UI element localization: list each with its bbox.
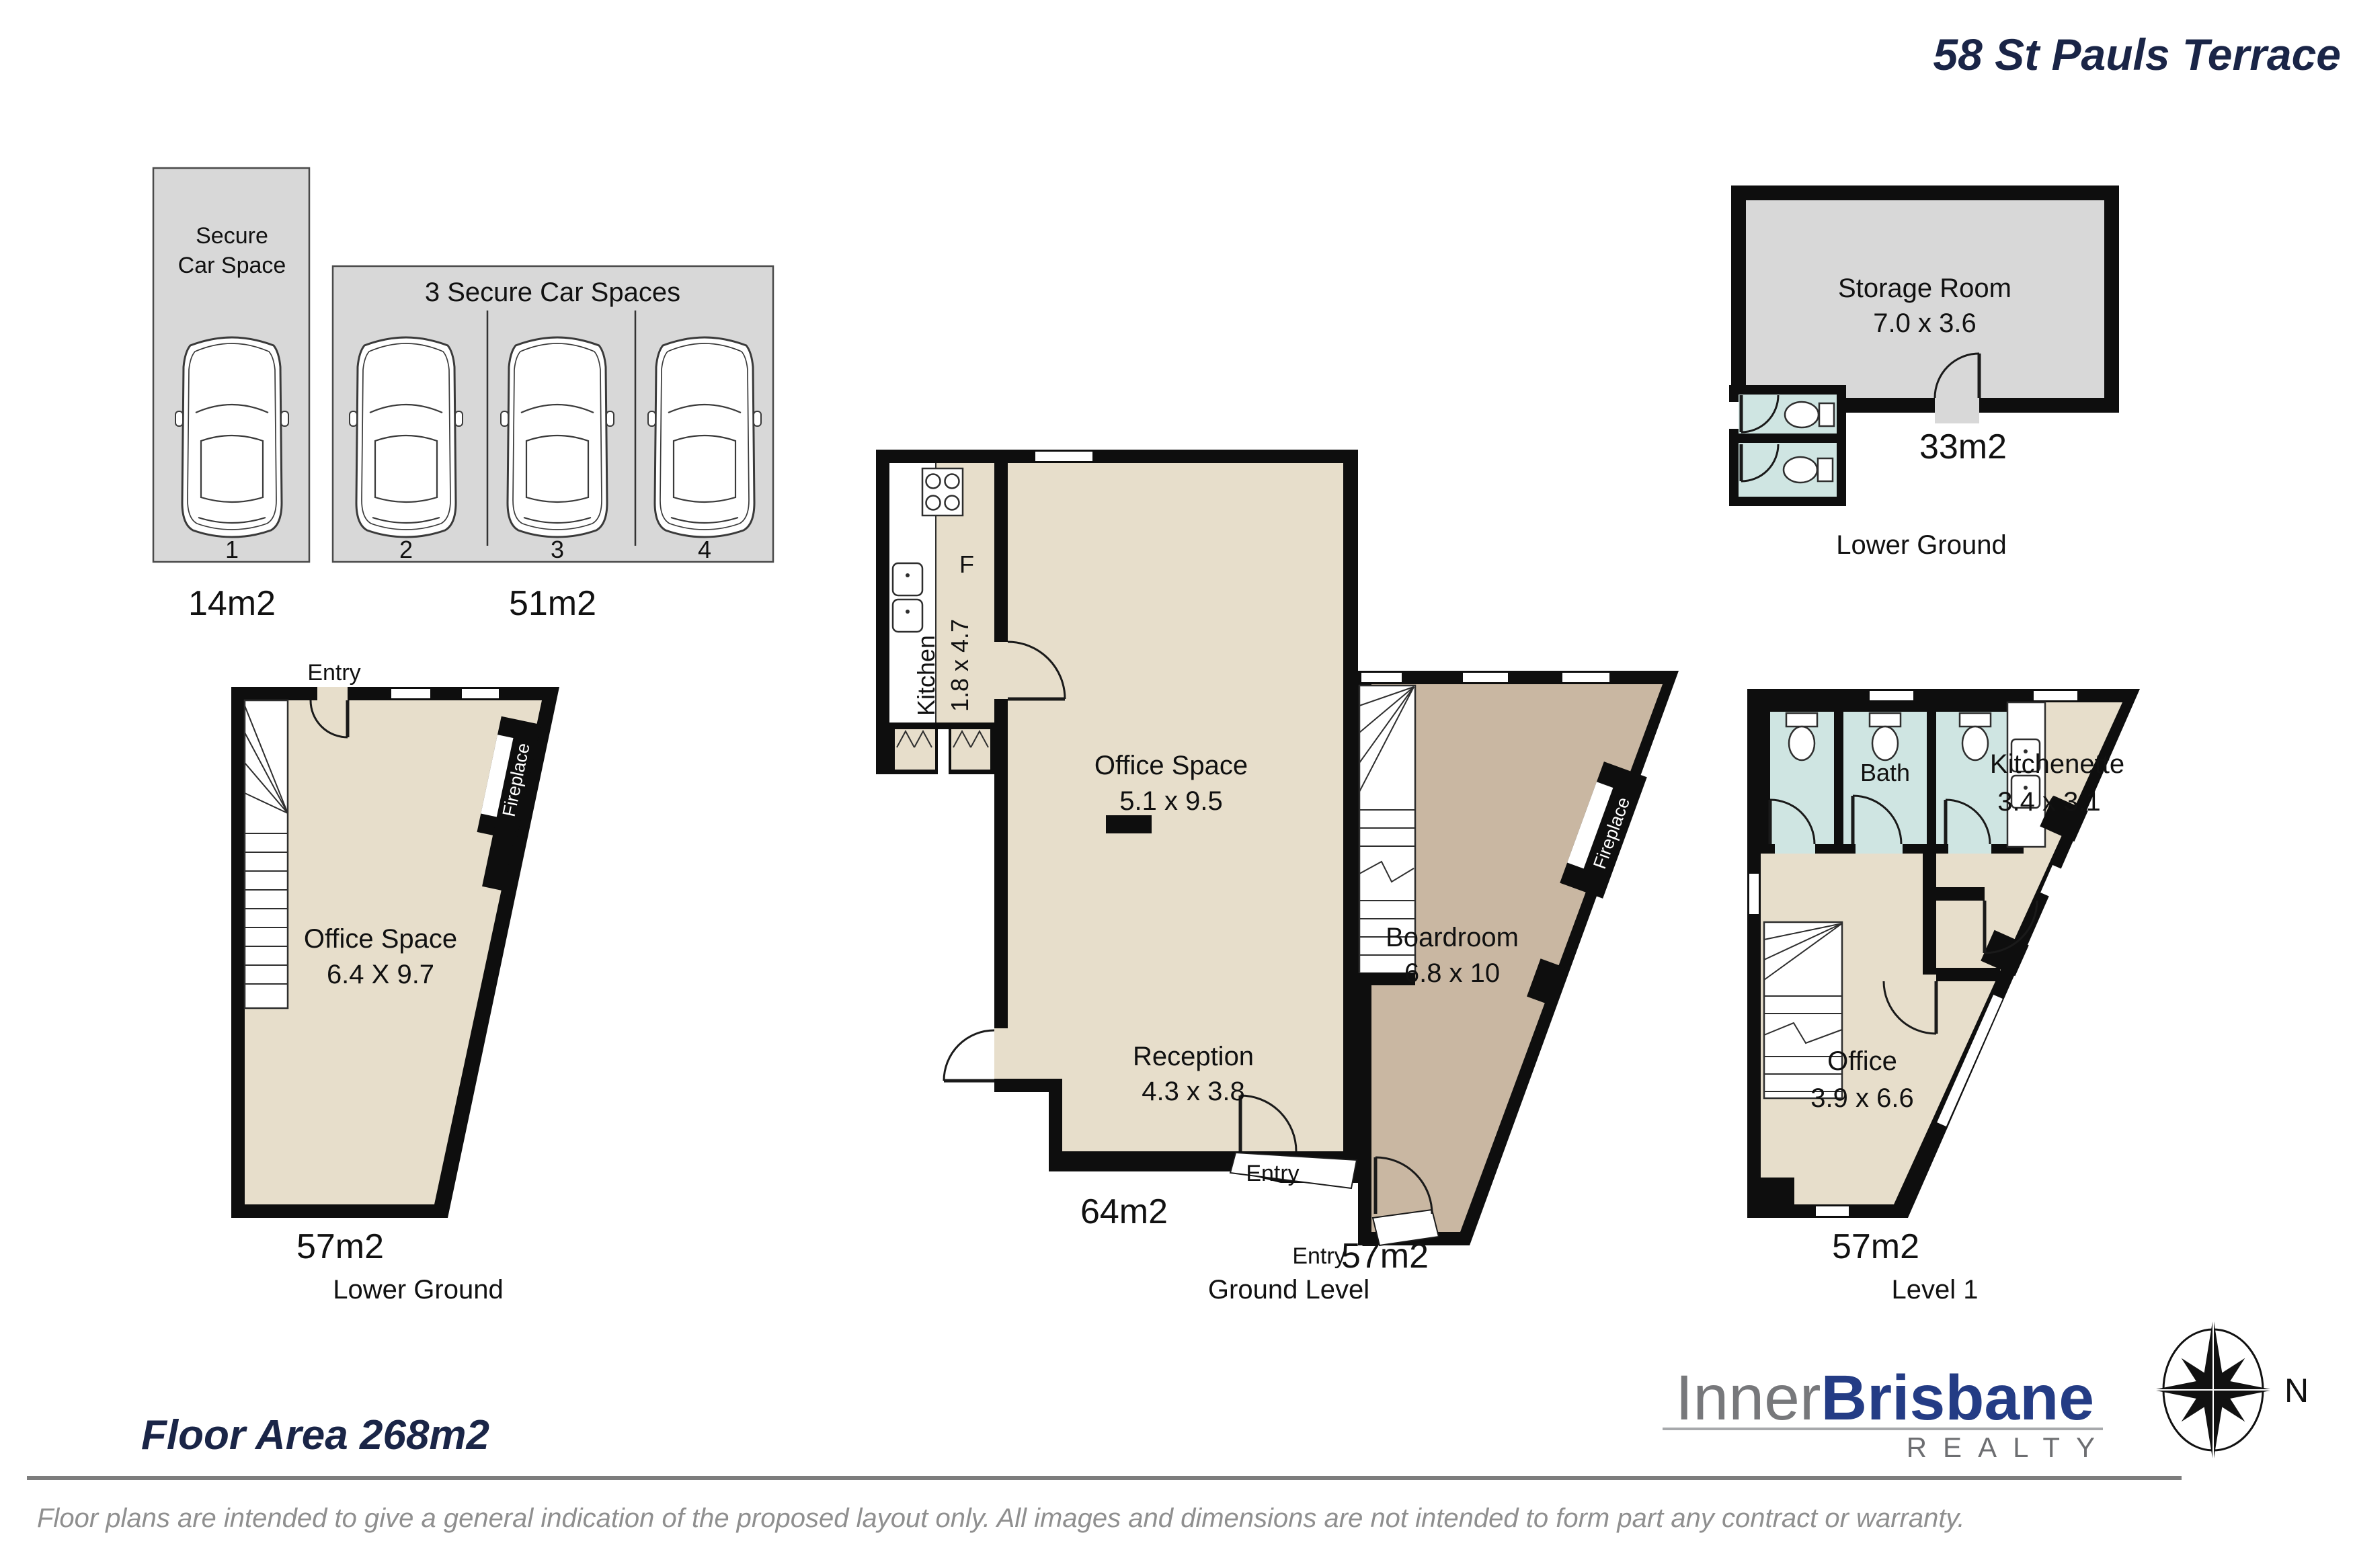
logo-part-inner: Inner xyxy=(1675,1362,1821,1434)
floor-area-total: Floor Area 268m2 xyxy=(141,1412,489,1458)
lower-ground-level: Lower Ground xyxy=(333,1275,503,1305)
lower-ground-plan: Entry Fireplace Office Space xyxy=(231,660,559,1305)
ground-area-right: 57m2 xyxy=(1341,1237,1429,1276)
compass-icon xyxy=(2149,1317,2277,1462)
single-space-title-line2: Car Space xyxy=(178,253,286,278)
space-number-4: 4 xyxy=(698,536,711,563)
car-icon xyxy=(350,337,463,537)
boardroom-label: Boardroom xyxy=(1386,923,1519,952)
compass-north-label: N xyxy=(2284,1372,2309,1409)
storage-plan: Storage Room 7.0 x 3.6 33m2 Lower Ground xyxy=(1729,185,2119,560)
car-icon xyxy=(648,337,761,537)
footer-divider xyxy=(27,1476,2182,1480)
toilet-icon xyxy=(1784,457,1833,483)
disclaimer-text: Floor plans are intended to give a gener… xyxy=(37,1503,1965,1533)
lower-ground-room-dims: 6.4 X 9.7 xyxy=(327,960,434,989)
boardroom-dims: 6.8 x 10 xyxy=(1404,958,1500,988)
level1-office-label: Office xyxy=(1827,1046,1897,1076)
level1-level-label: Level 1 xyxy=(1892,1275,1979,1305)
lower-ground-room-label: Office Space xyxy=(304,924,457,954)
floorplan-canvas: 58 St Pauls Terrace Secure Car Space 3 S… xyxy=(0,0,2353,1568)
toilet-icon xyxy=(1785,402,1834,427)
logo-part-brisbane: Brisbane xyxy=(1821,1362,2095,1434)
level1-plan: Bath Kitchenette 3.4 x 3.1 Office 3.9 x … xyxy=(1747,689,2140,1305)
kitchenette-dims: 3.4 x 3.1 xyxy=(1997,787,2100,817)
toilet-icon xyxy=(1960,713,1991,760)
single-space-area: 14m2 xyxy=(188,584,276,623)
level1-area: 57m2 xyxy=(1832,1227,1919,1266)
logo-part-realty: REALTY xyxy=(1907,1432,2111,1463)
storage-area: 33m2 xyxy=(1919,427,2007,466)
triple-space-title: 3 Secure Car Spaces xyxy=(425,278,680,307)
toilet-icon xyxy=(1870,713,1901,760)
floorplan-page: 58 St Pauls Terrace Secure Car Space 3 S… xyxy=(0,0,2353,1568)
lower-ground-entry-label: Entry xyxy=(307,660,360,686)
car-icon xyxy=(501,337,614,537)
fridge-label: F xyxy=(959,550,974,578)
storage-room-dims: 7.0 x 3.6 xyxy=(1873,308,1976,338)
ground-plan: Fireplace Kitchen 1.8 x 4.7 F Office Spa… xyxy=(876,450,1679,1305)
storage-level: Lower Ground xyxy=(1836,530,2006,560)
reception-label: Reception xyxy=(1133,1042,1254,1071)
storage-room-label: Storage Room xyxy=(1838,274,2011,303)
kitchen-label: Kitchen xyxy=(912,635,940,716)
lower-ground-area: 57m2 xyxy=(296,1227,384,1266)
ground-office-dims: 5.1 x 9.5 xyxy=(1119,786,1222,816)
level1-office-dims: 3.9 x 6.6 xyxy=(1810,1083,1913,1113)
space-number-2: 2 xyxy=(399,536,413,563)
car-icon xyxy=(175,337,288,537)
ground-entry-right-label: Entry xyxy=(1292,1243,1345,1269)
toilet-icon xyxy=(1786,713,1817,760)
parking-plan: Secure Car Space 3 Secure Car Spaces 1 2… xyxy=(153,168,773,623)
space-number-3: 3 xyxy=(551,536,564,563)
logo-wordmark: InnerBrisbane xyxy=(1675,1362,2094,1434)
stairs-icon xyxy=(245,700,288,1008)
reception-dims: 4.3 x 3.8 xyxy=(1142,1077,1244,1106)
door-arc-icon xyxy=(944,1030,994,1081)
ground-office-label: Office Space xyxy=(1094,751,1248,780)
ground-entry-left-label: Entry xyxy=(1246,1161,1299,1186)
single-space-title-line1: Secure xyxy=(196,223,268,249)
ground-area-left: 64m2 xyxy=(1080,1192,1168,1231)
bath-label: Bath xyxy=(1860,759,1910,786)
brand-logo: InnerBrisbane REALTY xyxy=(1663,1362,2111,1463)
page-title: 58 St Pauls Terrace xyxy=(1933,30,2341,79)
triple-space-area: 51m2 xyxy=(509,584,596,623)
ground-level-label: Ground Level xyxy=(1208,1275,1369,1305)
kitchenette-label: Kitchenette xyxy=(1990,749,2124,779)
space-number-1: 1 xyxy=(225,536,239,563)
kitchen-dims: 1.8 x 4.7 xyxy=(946,619,973,712)
stove-icon xyxy=(922,468,963,515)
